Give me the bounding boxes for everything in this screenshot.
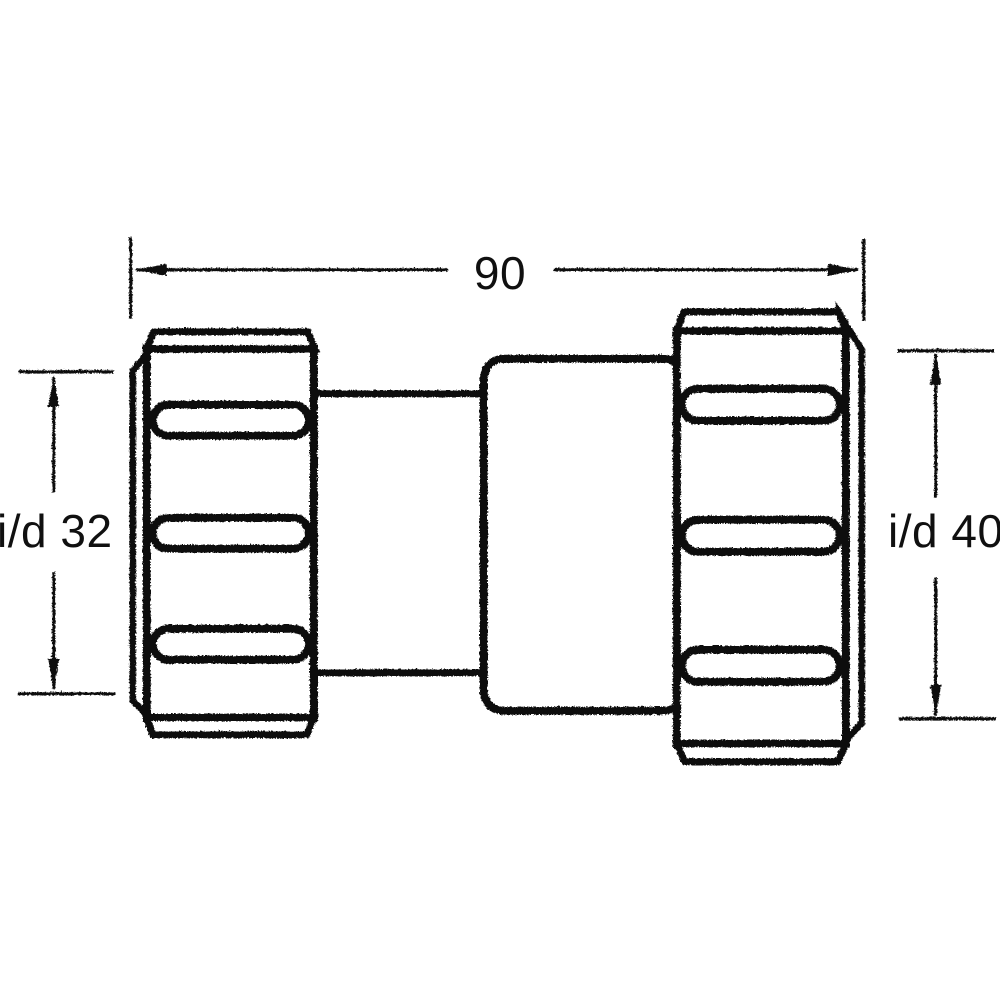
arrowhead-right-icon (827, 263, 859, 275)
right-union-nut (676, 311, 861, 761)
right-inner-diameter-label: i/d 40 (888, 508, 1000, 554)
pipe-section (313, 393, 492, 672)
coupling-center-body (483, 358, 683, 710)
arrowhead-up-icon (48, 374, 59, 406)
right-nut-groove-top (681, 388, 839, 420)
right-nut-groove-middle (681, 519, 839, 551)
arrowhead-left-icon (134, 263, 166, 275)
arrowhead-up-icon (930, 352, 941, 384)
arrowhead-down-icon (930, 684, 941, 716)
left-nut-groove-bottom (152, 628, 308, 659)
pipe-coupling-drawing (0, 0, 1000, 1000)
left-nut-groove-middle (152, 517, 308, 548)
left-nut-groove-top (152, 404, 308, 435)
left-union-nut (132, 331, 314, 734)
technical-drawing-canvas: 90 i/d 32 i/d 40 (0, 0, 1000, 1000)
right-nut-groove-bottom (681, 649, 839, 681)
overall-length-label: 90 (448, 250, 552, 296)
left-inner-diameter-label: i/d 32 (0, 508, 113, 554)
arrowhead-down-icon (48, 658, 59, 690)
